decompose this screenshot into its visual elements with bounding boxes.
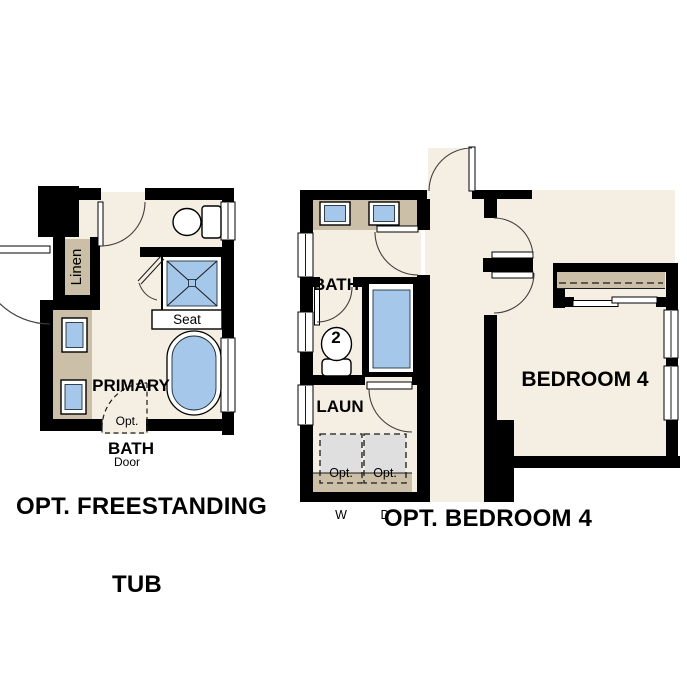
door-leaf (98, 202, 103, 246)
window (221, 338, 235, 412)
wall-segment (472, 190, 532, 199)
bath2-label: BATH 2 (296, 241, 376, 381)
window (664, 310, 678, 358)
seat-label: Seat (152, 310, 222, 329)
wall-segment (145, 188, 234, 200)
linen-label: Linen (69, 237, 85, 297)
wall-segment (484, 199, 497, 218)
left-plan-caption: OPT. FREESTANDING TUB (16, 442, 258, 650)
door-leaf (492, 272, 533, 278)
floor-area (425, 190, 488, 502)
opt-dryer-label: Opt. D (364, 438, 406, 550)
wall-segment (40, 300, 53, 431)
sink-fixture (369, 202, 399, 225)
sink-fixture (320, 202, 350, 225)
floorplan-canvas: Linen PRIMARY BATH Seat Opt. Door OPT. F… (0, 0, 687, 687)
door-leaf (367, 382, 412, 389)
wall-segment (417, 199, 430, 230)
door-leaf (377, 226, 418, 232)
opt-washer-label: Opt. W (320, 438, 362, 550)
laundry-label: LAUN (300, 396, 380, 417)
wall-segment (553, 263, 678, 272)
door-leaf (0, 246, 50, 253)
wall-segment (300, 190, 427, 200)
door-leaf (469, 147, 475, 191)
wall-segment (484, 315, 497, 420)
wall-segment (38, 186, 79, 237)
door-leaf (492, 252, 533, 258)
bedroom4-label: BEDROOM 4 (480, 369, 687, 392)
wall-segment (417, 275, 430, 502)
right-plan-caption: OPT. BEDROOM 4 (378, 506, 598, 532)
closet-shelf (557, 272, 665, 289)
wall-segment (53, 295, 100, 310)
window (221, 202, 235, 240)
wall-segment (483, 258, 533, 272)
wall-segment (79, 188, 101, 200)
wall-segment (500, 456, 680, 468)
floor-area (488, 190, 675, 467)
